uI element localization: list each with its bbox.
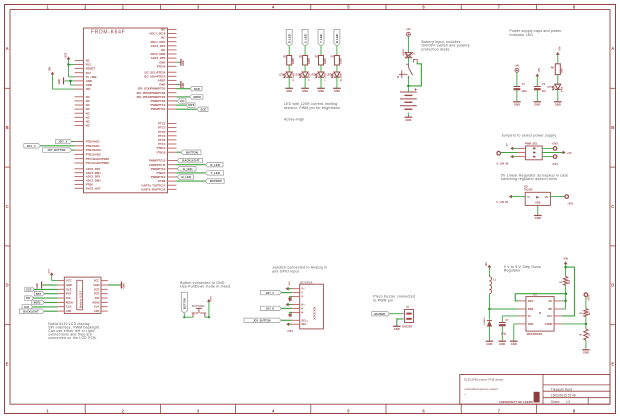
svg-text:COMP: COMP <box>545 323 553 326</box>
svg-text:connected on the LCD PCB.: connected on the LCD PCB. <box>48 336 97 340</box>
svg-text:BUTTON1: BUTTON1 <box>192 304 205 308</box>
svg-text:330R: 330R <box>561 68 563 74</box>
svg-text:PTE26: PTE26 <box>157 64 166 68</box>
svg-text:GND: GND <box>511 342 517 346</box>
svg-text:+5V1: +5V1 <box>552 162 559 166</box>
svg-text:PWR_SEL: PWR_SEL <box>525 141 538 145</box>
svg-text:+9V: +9V <box>515 63 520 67</box>
svg-text:MOSI: MOSI <box>34 301 41 305</box>
svg-text:DAC0_OUT: DAC0_OUT <box>86 186 101 190</box>
svg-text:C: C <box>611 204 614 209</box>
svg-text:SCE: SCE <box>66 287 72 291</box>
svg-text:CLK: CLK <box>94 305 100 309</box>
svg-text:GND: GND <box>334 89 340 93</box>
svg-text:VIN: VIN <box>86 87 91 91</box>
svg-text:JOY_BUTTON: JOY_BUTTON <box>47 148 65 152</box>
svg-text:NC: NC <box>86 124 90 128</box>
svg-text:47u: 47u <box>542 90 547 93</box>
svg-text:UART0_RX/PTC16: UART0_RX/PTC16 <box>141 187 166 191</box>
svg-text:GND: GND <box>58 79 61 85</box>
svg-text:+3V3: +3V3 <box>287 330 294 333</box>
svg-text:LED: LED <box>94 309 99 313</box>
svg-text:LED2: LED2 <box>295 74 302 77</box>
svg-text:Y_LED: Y_LED <box>211 171 220 175</box>
svg-text:LED1: LED1 <box>279 74 286 77</box>
svg-text:E: E <box>6 361 9 366</box>
svg-text:V_LIN_IN: V_LIN_IN <box>497 161 509 165</box>
svg-text:+5V: +5V <box>538 68 541 73</box>
svg-text:VO: VO <box>545 196 549 199</box>
svg-text:GND: GND <box>514 102 520 106</box>
svg-text:GND: GND <box>486 342 492 346</box>
svg-text:120R: 120R <box>324 58 327 64</box>
svg-text:PTC11/ADC/PWM: PTC11/ADC/PWM <box>86 161 110 165</box>
svg-text:GND: GND <box>499 342 505 346</box>
svg-text:+9V: +9V <box>406 27 411 31</box>
svg-text:JOY_X: JOY_X <box>58 140 67 144</box>
svg-text:GND: GND <box>123 283 126 289</box>
svg-text:GND: GND <box>318 89 324 93</box>
svg-text:TC: TC <box>528 315 532 318</box>
svg-text:GND: GND <box>291 312 293 317</box>
svg-text:1N4001: 1N4001 <box>402 48 405 56</box>
svg-text:PWM/PTA0: PWM/PTA0 <box>151 107 166 111</box>
svg-text:V_LIN_IN: V_LIN_IN <box>496 200 508 204</box>
svg-text:V: V <box>301 291 303 295</box>
svg-text:100p: 100p <box>501 333 507 336</box>
svg-text:+5V2: +5V2 <box>552 142 559 146</box>
svg-text:V+: V+ <box>301 287 305 291</box>
svg-text:UNIVERSITY OF LEEDS: UNIVERSITY OF LEEDS <box>499 400 533 404</box>
svg-text:+3V3: +3V3 <box>65 52 68 58</box>
svg-text:resistor. PWM pin for brightne: resistor. PWM pin for brightness. <box>284 106 341 110</box>
svg-text:G_LED: G_LED <box>183 167 193 171</box>
svg-text:Nokia 5110: Nokia 5110 <box>79 290 83 308</box>
svg-text:SCE: SCE <box>26 288 32 292</box>
svg-text:CLK: CLK <box>66 305 72 309</box>
svg-text:H: H <box>301 306 303 310</box>
svg-text:GND: GND <box>66 283 72 287</box>
svg-text:GND: GND <box>535 216 541 220</box>
svg-text:B_LED1: B_LED1 <box>341 72 343 81</box>
svg-text:RST: RST <box>94 292 100 296</box>
svg-text:D/C: D/C <box>26 296 31 300</box>
svg-text:JOYSTICK: JOYSTICK <box>313 307 317 320</box>
svg-text:+3V3: +3V3 <box>48 268 50 274</box>
svg-text:D: D <box>611 283 614 288</box>
svg-text:VCC: VCC <box>547 315 552 318</box>
svg-text:LED: LED <box>66 309 71 313</box>
svg-text:JOY_H: JOY_H <box>266 307 275 311</box>
svg-text:VIN: VIN <box>49 67 52 71</box>
svg-text:+: + <box>414 104 416 108</box>
svg-text:Jumpers to select power supply: Jumpers to select power supply <box>501 133 556 137</box>
svg-text:BACKLIGHT: BACKLIGHT <box>23 309 39 313</box>
svg-text:SCE: SCE <box>94 287 100 291</box>
svg-text:GND: GND <box>302 89 308 93</box>
svg-text:LED3: LED3 <box>311 74 318 77</box>
svg-text:GND: GND <box>93 283 99 287</box>
svg-text:MC34063AD: MC34063AD <box>527 332 543 336</box>
svg-text:VIN: VIN <box>563 256 567 260</box>
svg-text:VCC: VCC <box>66 279 72 283</box>
svg-text:R_LED: R_LED <box>210 163 219 167</box>
svg-text:+5V1: +5V1 <box>567 201 574 205</box>
svg-text:switching regulator doesn't wo: switching regulator doesn't work <box>501 177 557 181</box>
svg-text:V-: V- <box>301 295 304 299</box>
svg-text:B_LED: B_LED <box>182 175 191 179</box>
svg-text:GND: GND <box>405 118 411 122</box>
svg-text:GND: GND <box>394 327 400 331</box>
svg-text:GND: GND <box>534 102 540 106</box>
svg-text:VCC: VCC <box>94 279 100 283</box>
svg-text:MOSI: MOSI <box>66 300 73 304</box>
svg-text:LED5: LED5 <box>547 87 553 89</box>
svg-text:JOY_BUTTON: JOY_BUTTON <box>253 318 271 322</box>
svg-text:GND: GND <box>528 323 534 326</box>
svg-text:+3V3: +3V3 <box>289 296 291 302</box>
svg-text:BUTTON: BUTTON <box>186 150 198 154</box>
svg-text:120R: 120R <box>340 58 343 64</box>
svg-text:RST: RST <box>188 103 194 107</box>
svg-text:E: E <box>611 361 614 366</box>
svg-text:1/1: 1/1 <box>566 400 571 404</box>
svg-text:GND: GND <box>555 102 561 106</box>
svg-text:B: B <box>611 125 614 130</box>
svg-text:JOY_V: JOY_V <box>266 291 275 295</box>
svg-text:A: A <box>6 46 9 51</box>
svg-text:78L05Z: 78L05Z <box>524 189 533 192</box>
svg-text:BUZZER: BUZZER <box>210 179 223 183</box>
svg-text:+9V: +9V <box>506 143 508 147</box>
svg-text:H+: H+ <box>301 303 305 307</box>
svg-text:PTB18: PTB18 <box>157 150 166 154</box>
svg-text:JOYSTICK: JOYSTICK <box>300 280 313 284</box>
svg-text:+9V: +9V <box>485 262 488 267</box>
svg-text:PWR: PWR <box>561 86 563 92</box>
svg-text:+3V3: +3V3 <box>289 280 291 286</box>
svg-text:BUZZER: BUZZER <box>375 312 386 316</box>
svg-text:SCK: SCK <box>194 87 201 91</box>
svg-text:B: B <box>6 125 9 130</box>
svg-text:GND: GND <box>182 60 185 66</box>
svg-text:BACKLIGHT: BACKLIGHT <box>182 159 199 163</box>
svg-text:D/C: D/C <box>95 296 100 300</box>
svg-text:RST: RST <box>36 292 42 296</box>
svg-text:B_LED: B_LED <box>335 34 339 43</box>
svg-text:H-: H- <box>301 310 304 314</box>
svg-text:SWC: SWC <box>528 300 534 303</box>
svg-text:GND: GND <box>286 89 292 93</box>
svg-text:MOSI: MOSI <box>194 95 202 99</box>
svg-text:SEL-: SEL- <box>301 322 307 326</box>
svg-text:indicator LED: indicator LED <box>510 33 534 37</box>
svg-text:120R: 120R <box>308 58 311 64</box>
svg-text:100u: 100u <box>521 90 527 93</box>
svg-text:RST: RST <box>66 292 72 296</box>
svg-text:+5V2: +5V2 <box>588 294 591 301</box>
svg-text:D/C: D/C <box>66 296 71 300</box>
svg-text:BUZZER: BUZZER <box>402 325 412 328</box>
svg-text:BUTTON: BUTTON <box>183 298 187 309</box>
svg-text:VI: VI <box>527 196 530 199</box>
svg-text:GND: GND <box>36 283 39 289</box>
svg-text:120R: 120R <box>292 58 295 64</box>
svg-text:SEL+: SEL+ <box>301 318 308 322</box>
svg-text:+5V: +5V <box>558 46 561 51</box>
svg-text:to PWM pin: to PWM pin <box>373 299 393 303</box>
svg-text:and GPIO input: and GPIO input <box>272 269 299 273</box>
svg-text:MOSI: MOSI <box>93 300 100 304</box>
svg-text:Use PullDown mode in mbed.: Use PullDown mode in mbed. <box>180 285 231 289</box>
svg-text:Sheet:: Sheet: <box>551 400 560 404</box>
svg-text:+5V: +5V <box>567 151 572 155</box>
svg-text:SCE: SCE <box>200 107 206 111</box>
svg-text:D: D <box>6 283 9 288</box>
svg-text:C: C <box>6 204 9 209</box>
svg-text:IPK: IPK <box>548 308 552 311</box>
svg-text:CLK: CLK <box>24 305 29 309</box>
svg-text:G_LED: G_LED <box>303 34 307 43</box>
svg-text:ELEC2645 project: PCB design: ELEC2645 project: PCB design <box>464 378 503 382</box>
svg-text:R_LED: R_LED <box>287 34 291 43</box>
svg-text:Active-High: Active-High <box>284 118 304 122</box>
svg-text:GND: GND <box>535 202 541 205</box>
svg-text:+3V3: +3V3 <box>210 296 212 302</box>
svg-text:DC: DC <box>549 300 553 303</box>
svg-text:JOY_Y: JOY_Y <box>27 144 36 148</box>
svg-text:SWE: SWE <box>528 308 534 311</box>
svg-text:Treasure Hunt: Treasure Hunt <box>551 387 572 391</box>
svg-text:embedded systems project: embedded systems project <box>464 387 498 391</box>
svg-text:FRDM-K64F: FRDM-K64F <box>91 30 125 36</box>
svg-text:GND: GND <box>291 296 293 301</box>
svg-text:A: A <box>611 46 614 51</box>
svg-text:GND: GND <box>182 82 185 88</box>
svg-text:Y_LED: Y_LED <box>319 34 323 43</box>
svg-text:protection diode.: protection diode. <box>422 48 451 52</box>
svg-text:LED4: LED4 <box>327 74 334 77</box>
svg-text:GND: GND <box>583 350 589 354</box>
svg-text:1N5819: 1N5819 <box>484 317 486 325</box>
svg-text:Regulator: Regulator <box>504 269 522 273</box>
svg-text:15/03/2015 15:48: 15/03/2015 15:48 <box>551 394 576 398</box>
